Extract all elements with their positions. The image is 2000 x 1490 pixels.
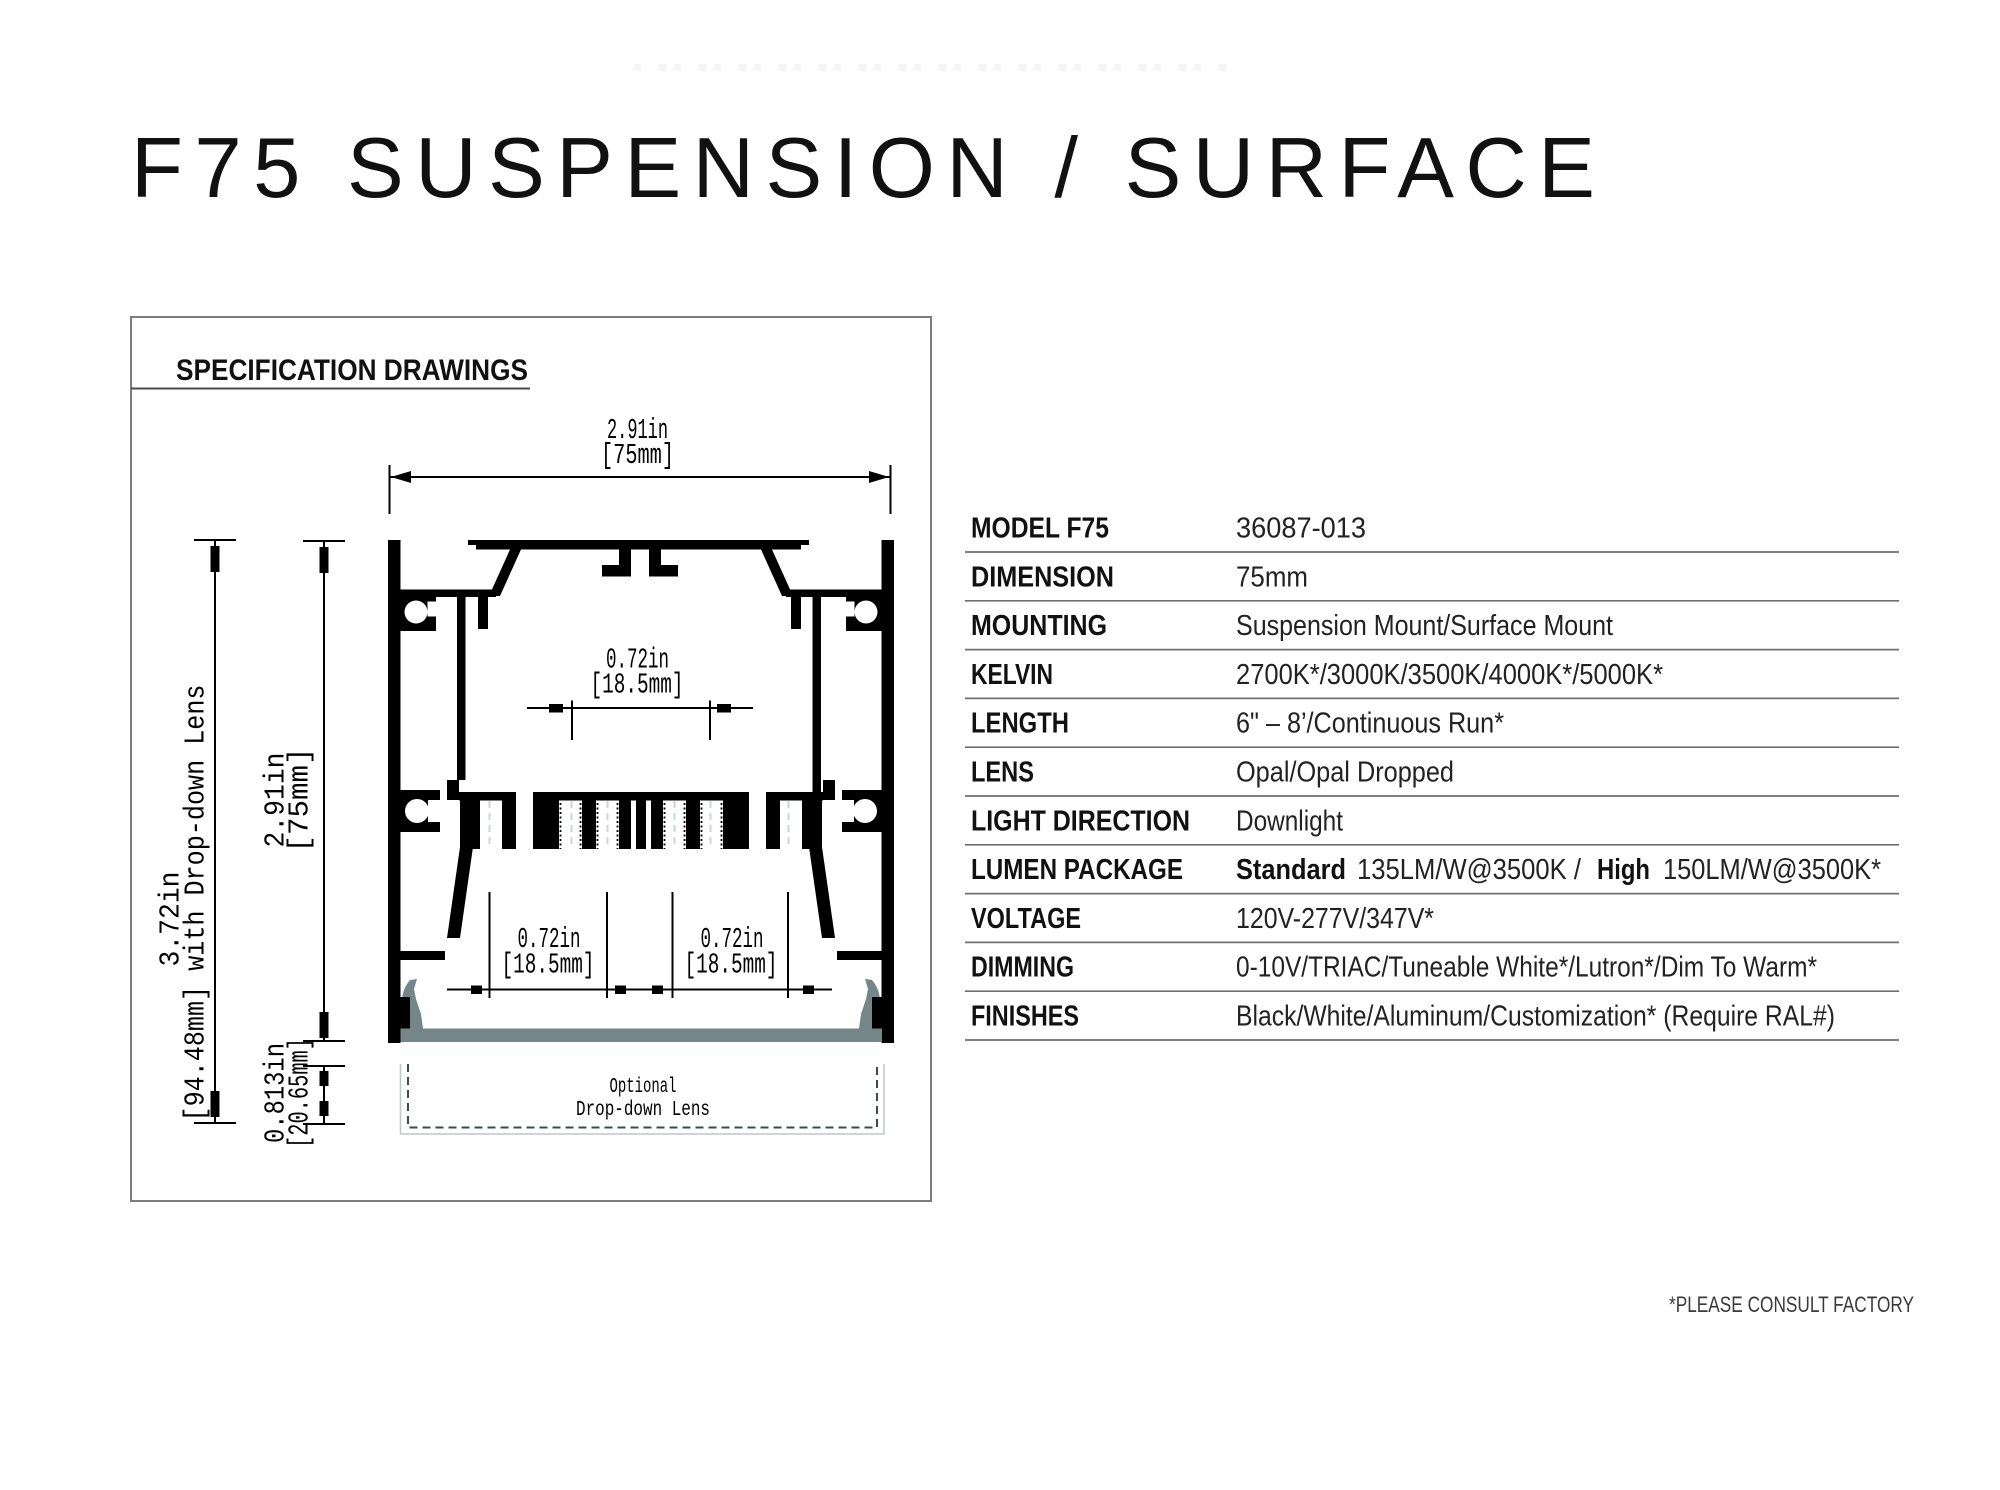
svg-text:VOLTAGE: VOLTAGE (971, 903, 1081, 935)
svg-text:SPECIFICATION DRAWINGS: SPECIFICATION DRAWINGS (176, 354, 528, 387)
svg-text:[75mm]: [75mm] (601, 439, 674, 472)
svg-text:Opal/Opal Dropped: Opal/Opal Dropped (1236, 757, 1454, 789)
svg-text:[18.5mm]: [18.5mm] (591, 669, 684, 702)
svg-text:[20.65mm]: [20.65mm] (284, 1038, 317, 1148)
svg-text:[94.48mm] with Drop-down Lens: [94.48mm] with Drop-down Lens (180, 685, 213, 1122)
svg-text:135LM/W@3500K /: 135LM/W@3500K / (1357, 854, 1581, 886)
svg-text:0-10V/TRIAC/Tuneable White*/Lu: 0-10V/TRIAC/Tuneable White*/Lutron*/Dim … (1236, 952, 1817, 984)
svg-text:Standard: Standard (1236, 854, 1346, 886)
svg-text:MODEL F75: MODEL F75 (971, 513, 1109, 545)
svg-text:Black/White/Aluminum/Customiza: Black/White/Aluminum/Customization* (Req… (1236, 1001, 1835, 1033)
svg-text:*PLEASE CONSULT FACTORY: *PLEASE CONSULT FACTORY (1669, 1292, 1914, 1317)
svg-text:36087-013: 36087-013 (1236, 513, 1366, 545)
svg-text:Suspension Mount/Surface Mount: Suspension Mount/Surface Mount (1236, 610, 1613, 642)
svg-text:MOUNTING: MOUNTING (971, 610, 1107, 642)
svg-text:Downlight: Downlight (1236, 805, 1343, 837)
svg-text:75mm: 75mm (1236, 561, 1308, 593)
svg-text:Optional: Optional (610, 1076, 677, 1099)
svg-text:DIMMING: DIMMING (971, 952, 1074, 984)
svg-text:DIMENSION: DIMENSION (971, 561, 1114, 593)
svg-text:6" – 8’/Continuous Run*: 6" – 8’/Continuous Run* (1236, 708, 1504, 740)
svg-text:KELVIN: KELVIN (971, 659, 1053, 691)
svg-text:LUMEN PACKAGE: LUMEN PACKAGE (971, 854, 1183, 886)
svg-text:High: High (1597, 854, 1650, 886)
svg-text:LENGTH: LENGTH (971, 708, 1069, 740)
svg-text:[18.5mm]: [18.5mm] (502, 949, 595, 982)
svg-text:[75mm]: [75mm] (284, 748, 317, 853)
svg-text:LIGHT DIRECTION: LIGHT DIRECTION (971, 805, 1190, 837)
svg-text:LENS: LENS (971, 757, 1034, 789)
svg-text:FINISHES: FINISHES (971, 1001, 1079, 1033)
svg-text:Drop-down Lens: Drop-down Lens (576, 1099, 710, 1122)
svg-text:F75 SUSPENSION / SURFACE: F75 SUSPENSION / SURFACE (131, 121, 1595, 216)
svg-text:120V-277V/347V*: 120V-277V/347V* (1236, 903, 1434, 935)
svg-text:150LM/W@3500K*: 150LM/W@3500K* (1663, 854, 1881, 886)
svg-text:2700K*/3000K/3500K/4000K*/5000: 2700K*/3000K/3500K/4000K*/5000K* (1236, 659, 1663, 691)
svg-text:[18.5mm]: [18.5mm] (685, 949, 778, 982)
